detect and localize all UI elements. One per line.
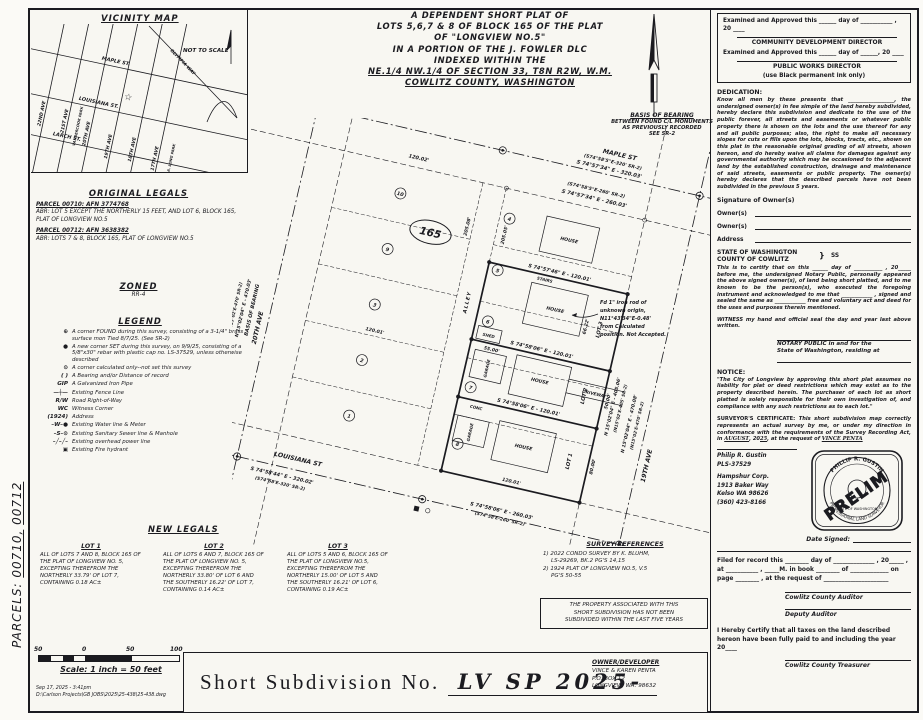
lot-circle-w4: 2 xyxy=(359,358,364,365)
surveyor-name: Philip R. Gustin xyxy=(717,452,809,461)
lot2-body: ALL OF LOTS 6 AND 7, BLOCK 165 OF THE PL… xyxy=(163,552,265,594)
lot-circle-e2: 5 xyxy=(495,268,500,275)
public-works-director-line: PUBLIC WORKS DIRECTOR xyxy=(737,61,897,70)
dim-205-05: 205.05' xyxy=(500,225,510,245)
alley-line-west xyxy=(418,183,483,466)
community-development-director-line: COMMUNITY DEVELOPMENT DIRECTOR xyxy=(737,37,897,46)
legend-item: ⊕A corner FOUND during this survey, cons… xyxy=(36,329,244,342)
owner-title: OWNER/DEVELOPER xyxy=(592,659,700,666)
date-signed-row: Date Signed: xyxy=(717,535,911,543)
zoned-title: ZONED xyxy=(36,281,241,291)
sewer-line-icon: –S–⊙ xyxy=(36,431,72,438)
vicinity-map-box: VICINITY MAP NOT TO SCALE MAPLE ST. LOUI… xyxy=(31,10,248,173)
surveyor-license: PLS-37529 xyxy=(717,461,809,470)
wc-symbol: WC xyxy=(36,406,72,413)
legend-item: —┼—Existing Fence Line xyxy=(36,390,244,397)
original-legals-title: ORIGINAL LEGALS xyxy=(36,188,241,198)
legend-item: ⊙A corner calculated only--not set this … xyxy=(36,365,244,372)
drawing-file-info: Sep 17, 2025 - 3:41pm D:\Carlson Project… xyxy=(36,686,166,699)
louisiana-st-label: LOUISIANA ST xyxy=(273,451,323,469)
owner-address-2: LONGVIEW, WA. 98632 xyxy=(592,683,700,691)
svg-text:from Calculated: from Calculated xyxy=(600,324,645,330)
surveyor-contact-block: Philip R. Gustin PLS-37529 Hampshur Corp… xyxy=(717,449,809,533)
legend-item: ▣Existing Fire hydrant xyxy=(36,447,244,454)
fire-hydrant-icon: ▣ xyxy=(36,447,72,454)
ink-note: (use Black permanent ink only) xyxy=(723,73,905,79)
surveyor-address-2: Kelso WA 98626 xyxy=(717,490,809,499)
plat-map-drawing: MAPLE ST (S74°58'5"E-320' SR-2) S 74°57'… xyxy=(232,118,710,546)
legend-item: R/WRoad Right-of-Way xyxy=(36,398,244,405)
vicinity-22nd-ave-label: 22ND AVE xyxy=(36,100,47,127)
zoned-value: RR-4 xyxy=(36,292,241,298)
iron-rod-note: Fd 1" iron rod of xyxy=(600,300,647,306)
approval-line-2: Examined and Approved this ______ day of… xyxy=(723,50,905,56)
gip-symbol: GIP xyxy=(36,381,72,388)
short-subdivision-label: Short Subdivision No. xyxy=(200,670,440,694)
plat-title-block: A DEPENDENT SHORT PLAT OF LOTS 5,6,7 & 8… xyxy=(300,10,680,88)
fence-line-icon: —┼— xyxy=(36,390,72,397)
lot2-label: LOT 2 xyxy=(580,387,590,405)
legend-item: –╱–╱–Existing overhead power line xyxy=(36,439,244,446)
svg-text:unknown origin,: unknown origin, xyxy=(600,308,646,314)
vicinity-map-drawing: MAPLE ST. LOUISIANA ST. LARCH ST. 22ND A… xyxy=(31,24,247,172)
scale-label: Scale: 1 inch = 50 feet xyxy=(38,665,184,674)
approval-block: Examined and Approved this ______ day of… xyxy=(717,13,911,83)
approval-line-1: Examined and Approved this ______ day of… xyxy=(723,18,905,24)
address-row: Address xyxy=(717,235,911,243)
parcel-number-2: 00712 xyxy=(10,482,24,525)
dim-205-08: 205.08' xyxy=(463,216,473,236)
dedication-title: DEDICATION: xyxy=(717,89,911,96)
original-legals-section: ORIGINAL LEGALS PARCEL 00710: AFN 377476… xyxy=(36,188,241,243)
zoned-section: ZONED RR-4 xyxy=(36,281,241,298)
title-line-6: NE.1/4 NW.1/4 OF SECTION 33, T8N R2W, W.… xyxy=(300,66,680,77)
parcels-label: PARCELS: xyxy=(10,583,24,649)
lot-circle-w2: 9 xyxy=(385,247,390,254)
lot-circle-e4: 7 xyxy=(468,385,473,392)
north-arrow-icon xyxy=(645,12,665,118)
dedication-body: Know all men by these presents that ____… xyxy=(717,97,911,191)
legend-item: –W–●Existing Water line & Meter xyxy=(36,422,244,429)
cert-requester: VINCE PENTA xyxy=(822,436,863,442)
alley-label: ALLEY xyxy=(462,290,473,314)
lot3-body: ALL OF LOTS 5 AND 6, BLOCK 165 OF THE PL… xyxy=(287,552,389,594)
scale-bar: 50 0 50 100 Scale: 1 inch = 50 feet xyxy=(38,646,188,674)
survey-ref-2: 2) 1924 PLAT OF LONGVIEW NO.5, V.5 xyxy=(543,566,707,573)
owner-address-1: P.O. BOX 12 xyxy=(592,676,700,684)
cowlitz-county-treasurer-line: Cowlitz County Treasurer xyxy=(785,660,911,669)
notice-title: NOTICE: xyxy=(717,369,911,376)
witness-clause: WITNESS my hand and official seal the da… xyxy=(717,317,911,330)
dim-120-02: 120.02' xyxy=(408,153,430,164)
parcel1-body: ABR: LOT 5 EXCEPT THE NORTHERLY 15 FEET,… xyxy=(36,209,236,222)
title-line-7: COWLITZ COUNTY, WASHINGTON xyxy=(300,77,680,88)
surveyor-address-1: 1913 Baker Way xyxy=(717,482,809,491)
surveyor-phone: (360) 423-8166 xyxy=(717,499,809,508)
rw-symbol: R/W xyxy=(36,398,72,405)
survey-references-section: SURVEY REFERENCES 1) 2022 CONDO SURVEY B… xyxy=(543,540,707,581)
lot-circle-w1: 10 xyxy=(396,191,405,199)
parcel-number-1: 00710, xyxy=(10,530,24,578)
lot-circle-w3: 3 xyxy=(372,302,377,309)
parcels-margin-label: PARCELS: 00710, 00712 xyxy=(10,482,24,648)
right-column-divider xyxy=(710,10,711,711)
legend-item: ( )A Bearing and/or Distance of record xyxy=(36,373,244,380)
vicinity-21st-ave-label: 21ST AVE xyxy=(59,108,70,134)
svg-text:N11°43'34"E-0.48': N11°43'34"E-0.48' xyxy=(600,316,652,322)
garage-label-1: GARAGE xyxy=(482,358,491,377)
owner-developer-block: OWNER/DEVELOPER VINCE & KAREN PENTA P.O.… xyxy=(592,659,700,691)
vicinity-park2-label: R.A. LONG PARK xyxy=(166,143,177,172)
house-label-1: HOUSE xyxy=(560,236,580,246)
dim-66-22: 66.22' xyxy=(582,318,591,335)
calculated-corner-icon: ⊙ xyxy=(36,365,72,372)
address-symbol: (1924) xyxy=(36,414,72,421)
state-of-washington: STATE OF WASHINGTON xyxy=(717,249,911,256)
found-corner-icon: ⊕ xyxy=(36,329,72,342)
survey-ref-1: 1) 2022 CONDO SURVEY BY K. BLUHM, xyxy=(543,551,707,558)
vicinity-17th-ave-label: 17TH AVE xyxy=(150,145,161,171)
vicinity-map-title: VICINITY MAP xyxy=(101,14,179,24)
new-legal-lot3: LOT 3 ALL OF LOTS 5 AND 6, BLOCK 165 OF … xyxy=(287,543,389,594)
lot3-title: LOT 3 xyxy=(287,543,389,550)
title-line-3: OF "LONGVIEW NO.5" xyxy=(300,32,680,43)
vicinity-19th-ave-label: 19TH AVE xyxy=(103,133,114,159)
new-legal-lot1: LOT 1 ALL OF LOTS 7 AND 8, BLOCK 165 OF … xyxy=(40,543,142,587)
vicinity-star-marker: ☆ xyxy=(123,92,133,103)
fire-hydrant-icon xyxy=(413,506,419,512)
water-line-icon: –W–● xyxy=(36,422,72,429)
title-bar: Short Subdivision No.LV SP 2025- OWNER/D… xyxy=(183,652,708,713)
lot-circle-e3: 6 xyxy=(485,319,490,326)
lot1-label: LOT 1 xyxy=(565,453,575,470)
set-corner-icon: ● xyxy=(36,344,72,364)
19th-ave-label: 19TH AVE xyxy=(640,448,655,483)
title-line-4: IN A PORTION OF THE J. FOWLER DLC xyxy=(300,44,680,55)
cert-month: AUGUST xyxy=(724,436,749,442)
lot1-body: ALL OF LOTS 7 AND 8, BLOCK 165 OF THE PL… xyxy=(40,552,142,587)
signature-of-owners-title: Signature of Owner(s) xyxy=(717,197,911,204)
owner-signature-row: Owner(s) xyxy=(717,209,911,217)
house-label-4: HOUSE xyxy=(514,443,534,453)
house-label-3: HOUSE xyxy=(530,377,550,387)
survey-references-title: SURVEY REFERENCES xyxy=(543,540,707,548)
surveyor-firm: Hampshur Corp. xyxy=(717,473,809,482)
vicinity-olympia-way-label: OLYMPIA WAY xyxy=(169,48,197,77)
power-line-icon: –╱–╱– xyxy=(36,439,72,446)
title-line-1: A DEPENDENT SHORT PLAT OF xyxy=(300,10,680,21)
lot2-title: LOT 2 xyxy=(163,543,265,550)
file-path: D:\Carlson Projects\GB JOBS\2025\25-438\… xyxy=(36,693,166,700)
county-of-cowlitz: COUNTY OF COWLITZ xyxy=(717,256,911,263)
new-legal-lot2: LOT 2 ALL OF LOTS 6 AND 7, BLOCK 165 OF … xyxy=(163,543,265,594)
deputy-auditor-line: Deputy Auditor xyxy=(785,609,911,618)
water-meter-icon xyxy=(425,508,430,513)
new-legals-title: NEW LEGALS xyxy=(148,524,219,534)
owner-name: VINCE & KAREN PENTA xyxy=(592,668,700,676)
legend-item: GIPA Galvanized Iron Pipe xyxy=(36,381,244,388)
block-number: 165 xyxy=(418,225,442,242)
right-column: Examined and Approved this ______ day of… xyxy=(717,13,911,669)
tax-certification: I Hereby Certify that all taxes on the l… xyxy=(717,627,911,652)
vicinity-20th-ave-label: 20TH AVE xyxy=(81,120,92,146)
plot-date: Sep 17, 2025 - 3:41pm xyxy=(36,686,166,693)
notice-body: "The City of Longview by approving this … xyxy=(717,377,911,411)
legend-item: –S–⊙Existing Sanitary Sewer line & Manho… xyxy=(36,431,244,438)
legend-title: LEGEND xyxy=(36,316,244,326)
conc-label: CONC xyxy=(470,404,483,412)
parcel2-body: ABR: LOTS 7 & 8, BLOCK 165, PLAT OF LONG… xyxy=(36,236,194,242)
notary-jurisdiction: STATE OF WASHINGTON }SS COUNTY OF COWLIT… xyxy=(717,249,911,263)
legend-item: ●A new corner SET during this survey, on… xyxy=(36,344,244,364)
lot1-title: LOT 1 xyxy=(40,543,142,550)
parcel1-head: PARCEL 00710: AFN 3774768 xyxy=(36,202,129,208)
notary-body: This is to certify that on this ______ d… xyxy=(717,265,911,312)
owner-signature-row: Owner(s) xyxy=(717,222,911,230)
surveyor-stamp: PHILLIP R. GUSTIN PROFESSIONAL LAND SURV… xyxy=(809,449,905,533)
garage-label-2: GARAGE xyxy=(465,422,474,441)
legend-item: (1924)Address xyxy=(36,414,244,421)
lot-circle-e1: 4 xyxy=(507,217,512,224)
parcel2-head: PARCEL 00712: AFN 3638382 xyxy=(36,228,129,234)
house-label-2: HOUSE xyxy=(546,305,566,315)
scale-bar-graphic xyxy=(38,655,180,662)
filed-for-record-block: Filed for record this ________ day of __… xyxy=(717,551,911,584)
title-line-5: INDEXED WITHIN THE xyxy=(300,55,680,66)
lot-circle-w5: 1 xyxy=(347,413,352,420)
vicinity-north-arrow-icon xyxy=(227,30,231,64)
shed-label: SHED xyxy=(482,332,496,340)
svg-text:position. Not Accepted.: position. Not Accepted. xyxy=(599,332,666,338)
cowlitz-county-auditor-line: Cowlitz County Auditor xyxy=(785,592,911,601)
five-year-note-box: THE PROPERTY ASSOCIATED WITH THIS SHORT … xyxy=(540,598,708,629)
stamp-prelim-overlay: PRELIM xyxy=(821,467,892,524)
record-parens-symbol: ( ) xyxy=(36,373,72,380)
vicinity-maple-label: MAPLE ST. xyxy=(101,56,131,68)
surveyors-certificate: SURVEYOR'S CERTIFICATE: This short subdi… xyxy=(717,416,911,443)
title-line-2: LOTS 5,6,7 & 8 OF BLOCK 165 OF THE PLAT xyxy=(300,21,680,32)
legend-item: WCWitness Corner xyxy=(36,406,244,413)
lot-circle-e5: 8 xyxy=(455,442,460,449)
legend-section: LEGEND ⊕A corner FOUND during this surve… xyxy=(36,316,244,455)
vicinity-18th-ave-label: 18TH AVE xyxy=(127,136,138,162)
